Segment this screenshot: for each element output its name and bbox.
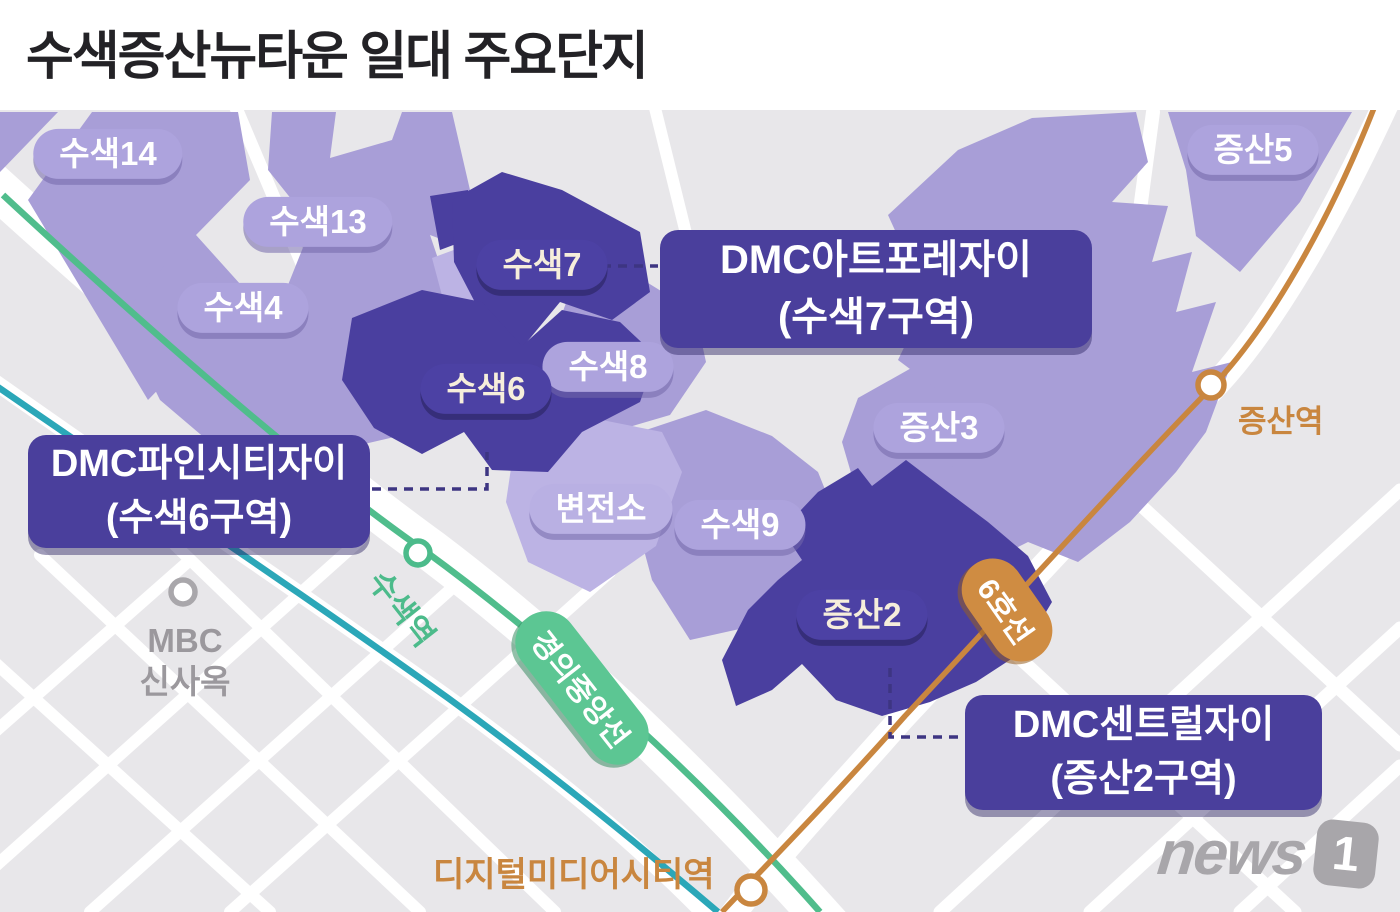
callout-dmc-central: DMC센트럴자이 (증산2구역) — [965, 695, 1322, 810]
page-title: 수색증산뉴타운 일대 주요단지 — [26, 14, 647, 89]
district-label-suseok13: 수색13 — [243, 197, 392, 247]
mbc-landmark-label: MBC 신사옥 — [139, 620, 230, 703]
district-label-suseok7: 수색7 — [476, 240, 607, 290]
district-label-suseok14: 수색14 — [33, 129, 182, 179]
callout-central-name: DMC센트럴자이 — [1013, 699, 1274, 753]
news1-logo: news 1 — [1158, 818, 1377, 889]
callout-finecity-name: DMC파인시티자이 — [51, 438, 347, 492]
district-label-jeungsan3: 증산3 — [873, 403, 1004, 453]
jeungsan-station-marker — [1198, 372, 1224, 398]
callout-finecity-zone: (수색6구역) — [106, 492, 292, 546]
district-label-suseok9: 수색9 — [674, 500, 805, 550]
callout-central-zone: (증산2구역) — [1050, 753, 1236, 807]
news1-logo-numeral: 1 — [1312, 817, 1381, 889]
mbc-label-line1: MBC — [139, 620, 230, 661]
news1-logo-word: news — [1154, 818, 1309, 889]
district-label-byeonjeonso: 변전소 — [529, 484, 672, 534]
digital-media-city-station-marker — [737, 876, 765, 904]
district-label-jeungsan2: 증산2 — [796, 590, 927, 640]
callout-artforest-name: DMC아트포레자이 — [720, 232, 1032, 289]
digital-media-city-station-name: 디지털미디어시티역 — [433, 847, 715, 896]
district-label-jeungsan5: 증산5 — [1187, 125, 1318, 175]
susaek-station-marker — [406, 541, 430, 565]
infographic-map: 수색증산뉴타운 일대 주요단지 수색14 수색13 수색4 수색8 변전소 수색… — [0, 0, 1400, 912]
district-label-suseok6: 수색6 — [420, 364, 551, 414]
callout-dmc-artforest: DMC아트포레자이 (수색7구역) — [660, 230, 1092, 348]
district-label-suseok4: 수색4 — [177, 283, 308, 333]
district-label-suseok8: 수색8 — [542, 342, 673, 392]
mbc-landmark-marker — [171, 580, 195, 604]
callout-artforest-zone: (수색7구역) — [778, 289, 974, 346]
mbc-label-line2: 신사옥 — [139, 661, 230, 702]
callout-dmc-finecity: DMC파인시티자이 (수색6구역) — [28, 435, 370, 548]
jeungsan-station-name: 증산역 — [1238, 396, 1324, 441]
